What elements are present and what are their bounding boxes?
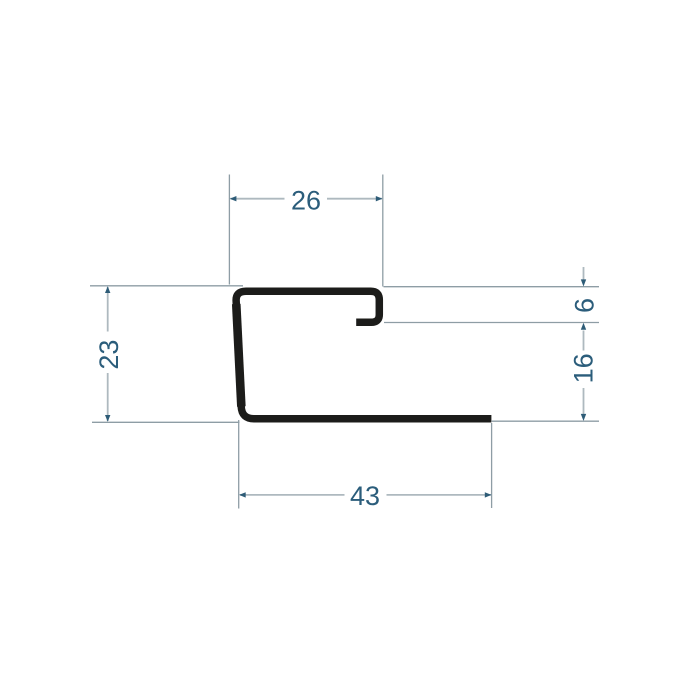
svg-text:6: 6 — [569, 298, 599, 313]
svg-text:26: 26 — [291, 186, 321, 216]
svg-text:23: 23 — [94, 340, 124, 370]
svg-text:43: 43 — [350, 481, 380, 511]
svg-text:16: 16 — [568, 353, 598, 383]
